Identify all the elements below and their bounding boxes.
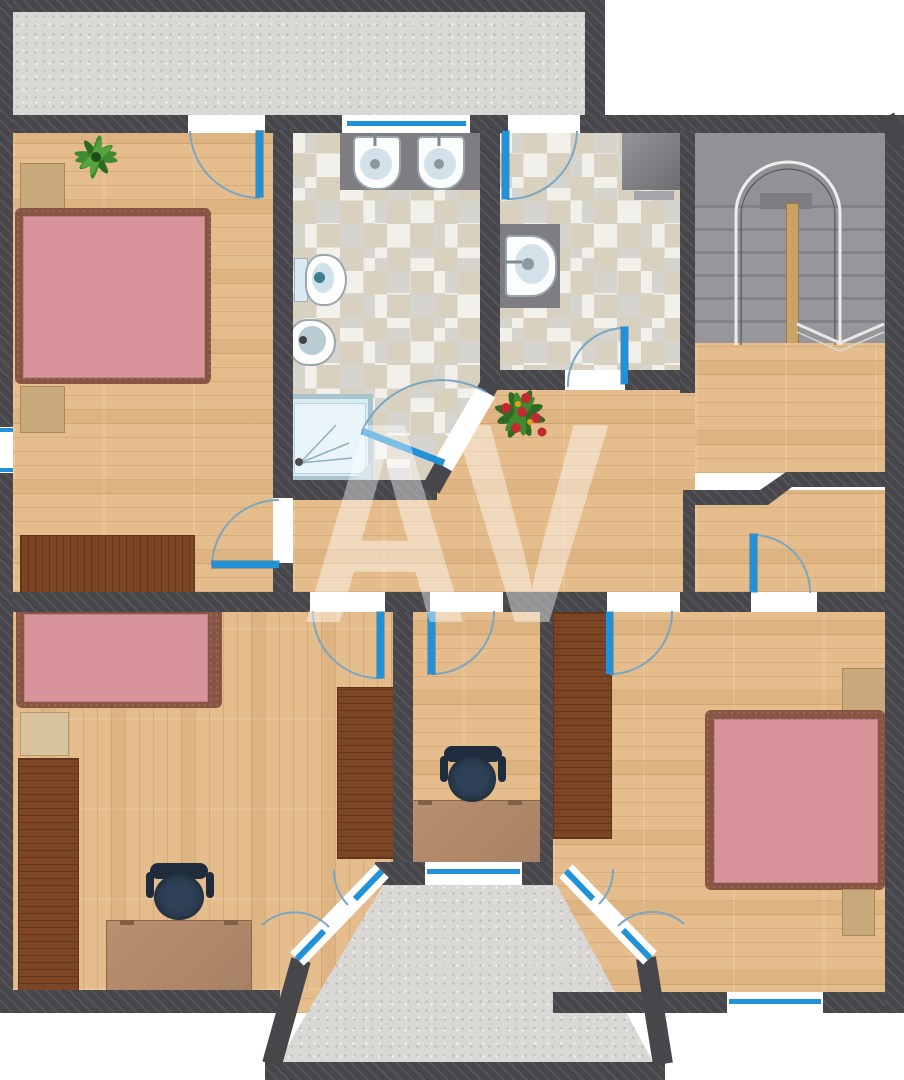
double-bed-mattress [23, 216, 205, 378]
door-opening [751, 592, 817, 612]
door-leaf [256, 131, 263, 197]
wall [553, 992, 727, 1013]
window-glass [347, 121, 466, 126]
wardrobe [553, 612, 612, 839]
door-leaf [502, 131, 509, 199]
door-opening [310, 592, 385, 612]
closet-floor [695, 490, 885, 592]
desk-handle [418, 800, 432, 805]
wall [683, 490, 695, 592]
stairs-left-flight [695, 205, 786, 345]
wall [273, 480, 437, 500]
wall [273, 130, 293, 498]
wall [585, 0, 605, 133]
wall [680, 592, 751, 612]
wc-corner-cabinet [622, 132, 683, 190]
wall [625, 370, 680, 390]
door-leaf [212, 561, 279, 568]
window-glass [0, 468, 13, 472]
desk-handle [224, 920, 238, 925]
wall [540, 612, 553, 862]
washbasin-right-bowl [424, 148, 456, 180]
toilet-drain [314, 272, 325, 283]
sideboard [20, 535, 195, 594]
bidet-drain [299, 336, 307, 344]
single-bed-mattress [24, 614, 208, 702]
door-leaf [377, 612, 384, 678]
wall [0, 990, 280, 1013]
wall [0, 0, 13, 427]
office-chair-arm [206, 872, 214, 898]
window-glass [729, 999, 821, 1004]
bedroom-desk [106, 920, 252, 992]
door-opening [430, 592, 503, 612]
office-chair-arm [146, 872, 154, 898]
wall [0, 0, 592, 12]
wc-cabinet-shelf [634, 191, 674, 200]
desk-handle [508, 800, 522, 805]
terrace-floor [13, 12, 585, 115]
window-glass [427, 869, 520, 874]
door-leaf [621, 327, 628, 384]
nightstand [842, 889, 875, 936]
stairs-center-divider [786, 203, 799, 347]
bench [20, 712, 69, 756]
window [0, 427, 13, 473]
door-opening [607, 592, 680, 612]
office-chair-arm [440, 756, 448, 782]
office-chair-arm [498, 756, 506, 782]
door-opening [508, 115, 580, 133]
study-desk [405, 800, 542, 864]
wall [817, 592, 885, 612]
wall [680, 130, 695, 393]
nightstand [20, 163, 65, 211]
wardrobe [337, 687, 395, 859]
wall [385, 592, 430, 612]
shower-tray [294, 403, 366, 474]
wall [522, 862, 553, 885]
window-glass [0, 428, 13, 432]
office-chair-seat [448, 756, 496, 802]
office-chair-seat [154, 874, 204, 920]
door-leaf [428, 612, 435, 674]
wall [500, 370, 565, 390]
door-opening [565, 370, 625, 390]
wall [0, 473, 13, 1013]
desk-handle [120, 920, 134, 925]
wall [503, 592, 607, 612]
washbasin-left-bowl [360, 148, 392, 180]
nightstand [842, 668, 887, 715]
wall [393, 612, 413, 862]
wall [823, 992, 885, 1013]
door-opening [273, 498, 293, 563]
wall [13, 592, 310, 612]
wc-washbasin-bowl [515, 244, 549, 284]
wardrobe [18, 758, 79, 992]
wall [13, 115, 188, 133]
wall [480, 130, 500, 390]
dresser [20, 386, 65, 433]
door-leaf [606, 612, 613, 674]
wall [885, 133, 904, 1013]
wall [375, 862, 425, 885]
stairs-right-flight [797, 205, 885, 345]
wall [265, 1062, 665, 1080]
door-opening [188, 115, 256, 133]
double-bed-mattress [714, 719, 878, 883]
stair-landing-floor [695, 343, 885, 473]
wall [585, 115, 904, 133]
door-leaf [750, 534, 757, 592]
floor-plan: AV [0, 0, 904, 1080]
